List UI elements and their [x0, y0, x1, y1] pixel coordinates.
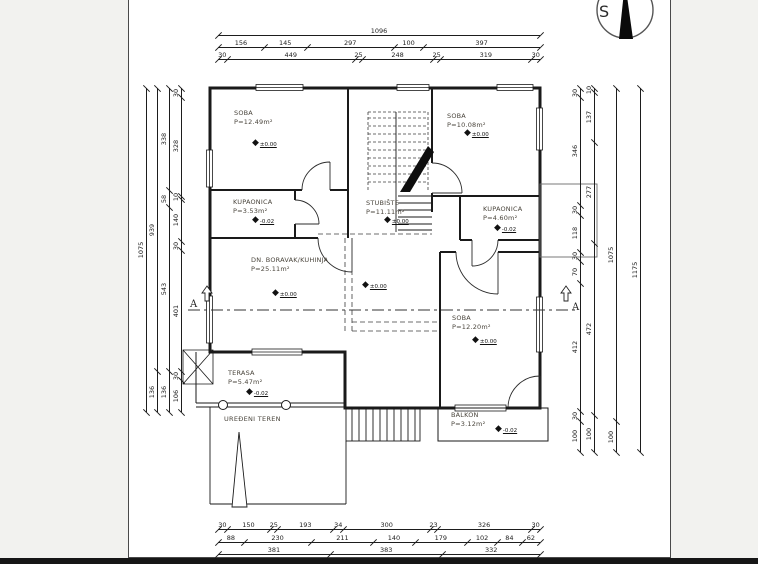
dim-label: 140 [172, 214, 180, 226]
level-marker: ◆-0.02 [252, 216, 274, 225]
dim-label: 88 [227, 534, 235, 542]
dim-label: 34 [334, 521, 342, 529]
dim-line [146, 88, 147, 412]
dim-label: 25 [354, 51, 362, 59]
level-diamond-icon: ◆ [246, 388, 253, 397]
site-label: UREĐENI TEREN [224, 415, 281, 423]
dim-label: 30 [571, 412, 579, 420]
room-name: DN. BORAVAK/KUHINJA [251, 256, 328, 265]
section-line: A A [188, 286, 580, 313]
level-value: ±0.00 [472, 133, 489, 139]
dim-label: 30 [172, 88, 180, 96]
dim-label: 30 [571, 206, 579, 214]
level-marker: ◆-0.02 [494, 224, 516, 233]
dim-line [218, 59, 540, 60]
dim-label: 297 [344, 39, 356, 47]
dim-line [580, 88, 581, 452]
room-area: P=25.11m² [251, 265, 328, 274]
dim-label: 30 [571, 89, 579, 97]
screenshot-stage: S [0, 0, 758, 564]
door-swings [295, 162, 540, 408]
room-name: SOBA [447, 112, 486, 121]
room-label-kupaonica-left: KUPAONICAP=3.53m² [233, 198, 272, 216]
section-label-left: A [189, 299, 198, 310]
room-area: P=12.20m² [452, 323, 491, 332]
dim-label: 412 [571, 341, 579, 353]
level-marker: ◆±0.00 [252, 139, 277, 148]
compass-rose: S [597, 0, 653, 39]
room-label-soba-br: SOBAP=12.20m² [452, 314, 491, 332]
dim-label: 137 [585, 110, 593, 122]
dim-label: 58 [160, 194, 168, 202]
level-value: -0.02 [503, 429, 517, 435]
level-diamond-icon: ◆ [495, 425, 502, 434]
dim-label: 156 [235, 39, 247, 47]
level-marker: ◆±0.00 [472, 336, 497, 345]
dim-label: 319 [480, 51, 492, 59]
dim-label: 10 [585, 86, 593, 94]
room-name: SOBA [452, 314, 491, 323]
level-marker: ◆±0.00 [384, 216, 409, 225]
dim-line [218, 542, 540, 543]
dim-label: 449 [285, 51, 297, 59]
dim-label: 346 [571, 145, 579, 157]
dim-label: 179 [435, 534, 447, 542]
level-value: ±0.00 [480, 340, 497, 346]
dim-label: 100 [585, 428, 593, 440]
dim-label: 300 [380, 521, 392, 529]
exterior-steps [346, 408, 420, 441]
dim-line [169, 88, 170, 412]
room-label-terasa: TERASAP=5.47m² [228, 369, 262, 387]
level-marker: ◆-0.02 [495, 425, 517, 434]
screen-edge-bar [0, 558, 758, 564]
level-marker: ◆±0.00 [464, 129, 489, 138]
dim-label: 1075 [137, 242, 145, 259]
ramp-symbol [183, 350, 213, 384]
dim-label: 30 [532, 521, 540, 529]
dim-label: 30 [172, 241, 180, 249]
dim-label: 1096 [371, 27, 388, 35]
level-diamond-icon: ◆ [252, 139, 259, 148]
level-value: ±0.00 [280, 293, 297, 299]
dim-label: 30 [532, 51, 540, 59]
dim-label: 326 [478, 521, 490, 529]
dim-label: 30 [571, 252, 579, 260]
interior-walls [210, 88, 540, 408]
dim-label: 1175 [631, 262, 639, 279]
dim-label: 383 [380, 546, 392, 554]
dim-label: 100 [402, 39, 414, 47]
dim-label: 30 [218, 51, 226, 59]
room-label-stubiste: STUBIŠTEP=11.11m² [366, 199, 405, 217]
dim-label: 543 [160, 283, 168, 295]
room-label-soba-tr: SOBAP=10.08m² [447, 112, 486, 130]
level-value: -0.02 [260, 220, 274, 226]
outer-walls [210, 88, 540, 408]
level-diamond-icon: ◆ [252, 216, 259, 225]
site-tree-symbol [232, 432, 247, 507]
room-area: P=5.47m² [228, 378, 262, 387]
stair-section-wedge [400, 146, 434, 192]
level-marker: ◆±0.00 [362, 281, 387, 290]
dim-label: 30 [218, 521, 226, 529]
dim-label: 939 [148, 223, 156, 235]
level-value: ±0.00 [370, 285, 387, 291]
section-label-right: A [571, 302, 580, 313]
dim-line [218, 554, 540, 555]
level-diamond-icon: ◆ [494, 224, 501, 233]
dim-label: 381 [268, 546, 280, 554]
dim-label: 23 [429, 521, 437, 529]
dim-label: 136 [160, 385, 168, 397]
dim-label: 140 [388, 534, 400, 542]
dim-label: 10 [172, 193, 180, 201]
room-name: BALKON [451, 411, 485, 420]
level-diamond-icon: ◆ [272, 289, 279, 298]
level-diamond-icon: ◆ [472, 336, 479, 345]
dim-line [640, 88, 641, 452]
dim-line [616, 88, 617, 452]
room-label-kupaonica-right: KUPAONICAP=4.60m² [483, 205, 522, 223]
room-area: P=12.49m² [234, 118, 273, 127]
level-diamond-icon: ◆ [384, 216, 391, 225]
dim-label: 332 [485, 546, 497, 554]
level-marker: ◆-0.02 [246, 388, 268, 397]
dim-label: 145 [279, 39, 291, 47]
dim-line [218, 47, 540, 48]
dim-line [157, 88, 158, 412]
dim-label: 150 [242, 521, 254, 529]
dim-label: 106 [172, 390, 180, 402]
section-arrow-right-icon [561, 286, 571, 301]
dim-label: 230 [271, 534, 283, 542]
dim-label: 401 [172, 304, 180, 316]
level-marker: ◆±0.00 [272, 289, 297, 298]
level-value: -0.02 [254, 392, 268, 398]
compass-north-label: S [599, 2, 609, 21]
room-label-dn-boravak-kuhinja: DN. BORAVAK/KUHINJAP=25.11m² [251, 256, 328, 274]
room-name: STUBIŠTE [366, 199, 405, 208]
room-name: KUPAONICA [233, 198, 272, 207]
dim-label: 100 [607, 430, 615, 442]
room-area: P=4.60m² [483, 214, 522, 223]
dim-label: 100 [571, 430, 579, 442]
dim-label: 102 [476, 534, 488, 542]
dim-label: 25 [432, 51, 440, 59]
dim-line [218, 35, 540, 36]
room-area: P=3.12m² [451, 420, 485, 429]
windows [207, 85, 543, 412]
dim-label: 338 [160, 133, 168, 145]
terrace [183, 350, 345, 410]
dim-line [218, 529, 540, 530]
level-value: ±0.00 [392, 220, 409, 226]
dim-label: 136 [148, 385, 156, 397]
level-value: -0.02 [502, 228, 516, 234]
dim-label: 397 [475, 39, 487, 47]
dim-label: 248 [391, 51, 403, 59]
dim-label: 1075 [607, 246, 615, 263]
dim-label: 328 [172, 140, 180, 152]
room-name: SOBA [234, 109, 273, 118]
dim-label: 70 [571, 268, 579, 276]
level-diamond-icon: ◆ [464, 129, 471, 138]
level-value: ±0.00 [260, 143, 277, 149]
room-name: TERASA [228, 369, 262, 378]
dim-label: 62 [527, 534, 535, 542]
dim-label: 472 [585, 323, 593, 335]
dim-label: 277 [585, 186, 593, 198]
dim-label: 25 [270, 521, 278, 529]
dim-label: 84 [505, 534, 513, 542]
dim-label: 211 [336, 534, 348, 542]
room-label-balkon: BALKONP=3.12m² [451, 411, 485, 429]
dim-label: 30 [172, 371, 180, 379]
dim-label: 118 [571, 227, 579, 239]
room-label-soba-tl: SOBAP=12.49m² [234, 109, 273, 127]
room-name: KUPAONICA [483, 205, 522, 214]
dim-label: 193 [299, 521, 311, 529]
level-diamond-icon: ◆ [362, 281, 369, 290]
